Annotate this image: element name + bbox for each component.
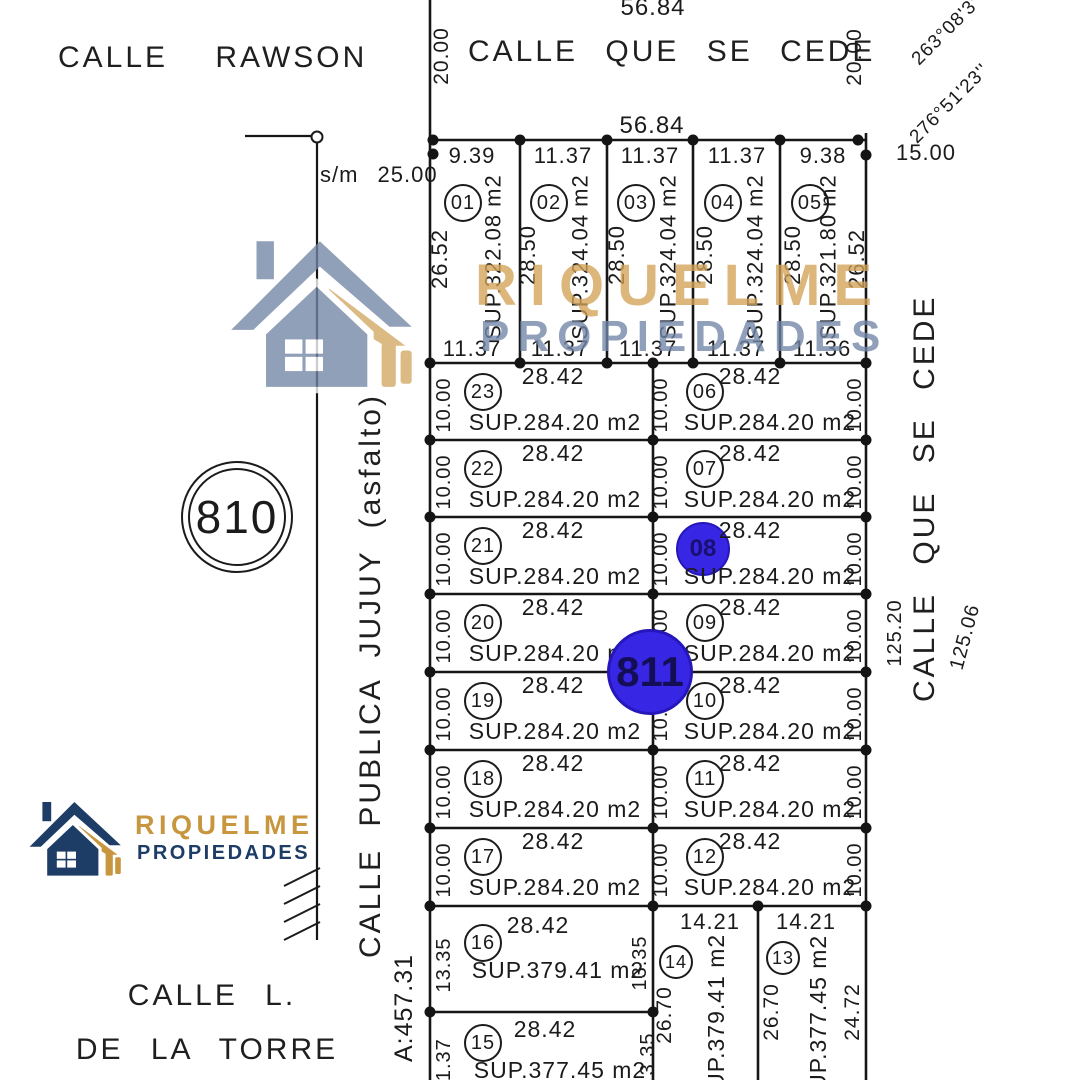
lot-02-width: 11.37	[523, 144, 603, 168]
lot-12-side-right: 10.00	[843, 835, 867, 905]
dim-south-vert: A:457.31	[392, 928, 416, 1080]
dim-sm-note: s/m 25.00	[320, 163, 438, 187]
lot-11-side-right: 10.00	[843, 757, 867, 827]
lot-16-top-dim: 28.42	[483, 913, 593, 937]
lot-row-17-12: 17 28.42 SUP.284.20 m2 10.00 12 28.42 SU…	[430, 828, 866, 905]
brand-logo: RIQUELME PROPIEDADES	[28, 788, 318, 898]
dim-east-inner: 125.20	[883, 588, 907, 678]
lot-08-area: SUP.284.20 m2	[670, 564, 870, 588]
lot-03-width: 11.37	[610, 144, 690, 168]
lot-13-side-right: 24.72	[841, 967, 865, 1057]
street-torre-line2: DE LA TORRE	[57, 1038, 357, 1062]
lot-19-side-dim: 10.00	[432, 679, 456, 749]
lot-11-top-dim: 28.42	[690, 751, 810, 775]
lot-05-width: 9.38	[783, 144, 863, 168]
lot-17-side-dim: 10.00	[432, 835, 456, 905]
lot-13-side-dim: 26.70	[760, 967, 784, 1057]
lot-07-side-left: 10.00	[649, 447, 673, 517]
lot-12-area: SUP.284.20 m2	[670, 875, 870, 899]
dim-street-width-right: 20.00	[843, 22, 867, 92]
lot-14-side-dim: 26.70	[653, 970, 677, 1060]
lot-09-side-right: 10.00	[843, 601, 867, 671]
lot-13-area: SUP.377.45 m2	[806, 921, 830, 1080]
lot-17-top-dim: 28.42	[493, 829, 613, 853]
lot-12-side-left: 10.00	[649, 835, 673, 905]
street-jujuy: CALLE PUBLICA JUJUY (asfalto)	[359, 438, 383, 958]
brand-house-icon	[228, 215, 418, 410]
dim-top-inner: 56.84	[602, 114, 702, 138]
lot-16-side-right: 13.35	[628, 923, 652, 1003]
lot-11-area: SUP.284.20 m2	[670, 797, 870, 821]
brand-tagline: PROPIEDADES	[137, 842, 310, 865]
lot-18-area: SUP.284.20 m2	[455, 797, 655, 821]
lot-15-top-dim: 28.42	[490, 1017, 600, 1041]
lot-14-area: SUP.379.41 m2	[704, 920, 728, 1080]
street-cede-right: CALLE QUE SE CEDE	[913, 372, 937, 702]
lot-01-width: 9.39	[432, 144, 512, 168]
lot-20-side-dim: 10.00	[432, 601, 456, 671]
brand-house-icon	[28, 788, 124, 888]
lot-04-width: 11.37	[697, 144, 777, 168]
lot-22-top-dim: 28.42	[493, 441, 613, 465]
brand-name: RIQUELME	[135, 810, 314, 841]
brand-watermark: RIQUELME PROPIEDADES	[225, 210, 885, 420]
lot-07-area: SUP.284.20 m2	[670, 487, 870, 511]
lot-15-side-left: 11.37	[432, 1025, 456, 1080]
lot-08-side-left: 10.00	[649, 524, 673, 594]
street-rawson: CALLE RAWSON	[58, 46, 367, 70]
lot-21-area: SUP.284.20 m2	[455, 564, 655, 588]
lot-11-side-left: 10.00	[649, 757, 673, 827]
dim-street-width-left: 20.00	[430, 21, 454, 91]
lot-08-side-right: 10.00	[843, 524, 867, 594]
lot-16-side-left: 13.35	[432, 925, 456, 1005]
lot-09-top-dim: 28.42	[690, 595, 810, 619]
block-810-marker: 810	[181, 461, 293, 573]
lot-row-22-07: 22 28.42 SUP.284.20 m2 10.00 07 28.42 SU…	[430, 440, 866, 517]
lot-07-top-dim: 28.42	[690, 441, 810, 465]
lot-row-18-11: 18 28.42 SUP.284.20 m2 10.00 11 28.42 SU…	[430, 750, 866, 827]
brand-name-watermark: RIQUELME	[475, 252, 885, 319]
lot-22-side-dim: 10.00	[432, 447, 456, 517]
lot-20-top-dim: 28.42	[493, 595, 613, 619]
lot-row-21-08: 21 28.42 SUP.284.20 m2 10.00 08 28.42 SU…	[430, 517, 866, 594]
street-torre-line1: CALLE L.	[82, 984, 342, 1008]
lot-12-top-dim: 28.42	[690, 829, 810, 853]
lot-18-top-dim: 28.42	[493, 751, 613, 775]
block-810-number: 810	[188, 468, 286, 566]
survey-plan-canvas: CALLE RAWSON 56.84 CALLE QUE SE CEDE 20.…	[0, 0, 1080, 1080]
lot-21-side-dim: 10.00	[432, 524, 456, 594]
lot-15-area: SUP.377.45 m2	[460, 1058, 660, 1080]
lot-08-top-dim: 28.42	[690, 518, 810, 542]
bottom-left-lots: 16 28.42 SUP.379.41 m2 13.35 13.35 15 28…	[430, 906, 655, 1080]
street-cede-top-label: CALLE QUE SE CEDE	[468, 40, 828, 64]
survey-point-marker-icon	[312, 132, 323, 143]
lot-17-area: SUP.284.20 m2	[455, 875, 655, 899]
dim-east-side: 15.00	[876, 141, 976, 165]
lot-09-area: SUP.284.20 m2	[670, 641, 870, 665]
lot-10-top-dim: 28.42	[690, 673, 810, 697]
lot-10-side-right: 10.00	[843, 679, 867, 749]
lot-19-top-dim: 28.42	[493, 673, 613, 697]
lot-10-area: SUP.284.20 m2	[670, 719, 870, 743]
lot-18-side-dim: 10.00	[432, 757, 456, 827]
block-811-highlight-marker: 811	[607, 629, 693, 715]
dim-top-outer: 56.84	[603, 0, 703, 20]
bottom-right-lots: 14.21 14.21 14 SUP.379.41 m2 26.70 13 SU…	[655, 906, 866, 1080]
brand-tagline-watermark: PROPIEDADES	[480, 312, 888, 362]
lot-19-area: SUP.284.20 m2	[455, 719, 655, 743]
lot-22-area: SUP.284.20 m2	[455, 487, 655, 511]
lot-07-side-right: 10.00	[843, 447, 867, 517]
lot-21-top-dim: 28.42	[493, 518, 613, 542]
